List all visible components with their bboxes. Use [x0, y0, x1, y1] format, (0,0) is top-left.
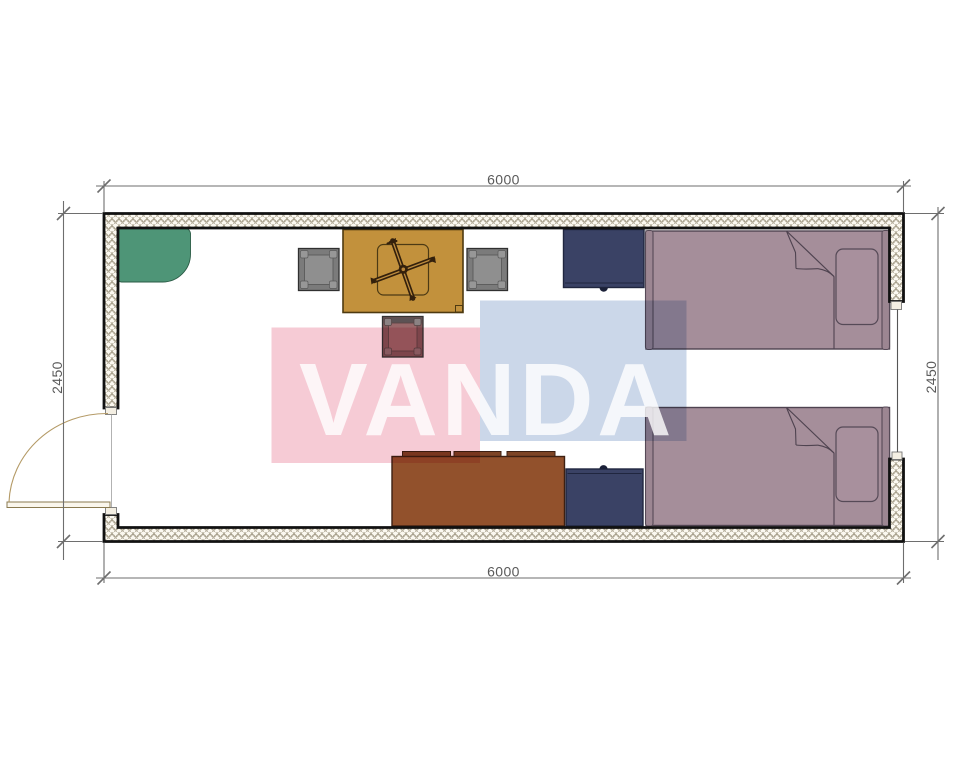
svg-text:2450: 2450 — [49, 361, 65, 394]
svg-text:VANDA: VANDA — [299, 342, 675, 457]
svg-text:6000: 6000 — [487, 172, 520, 188]
svg-text:2450: 2450 — [923, 361, 939, 394]
svg-text:6000: 6000 — [487, 564, 520, 580]
